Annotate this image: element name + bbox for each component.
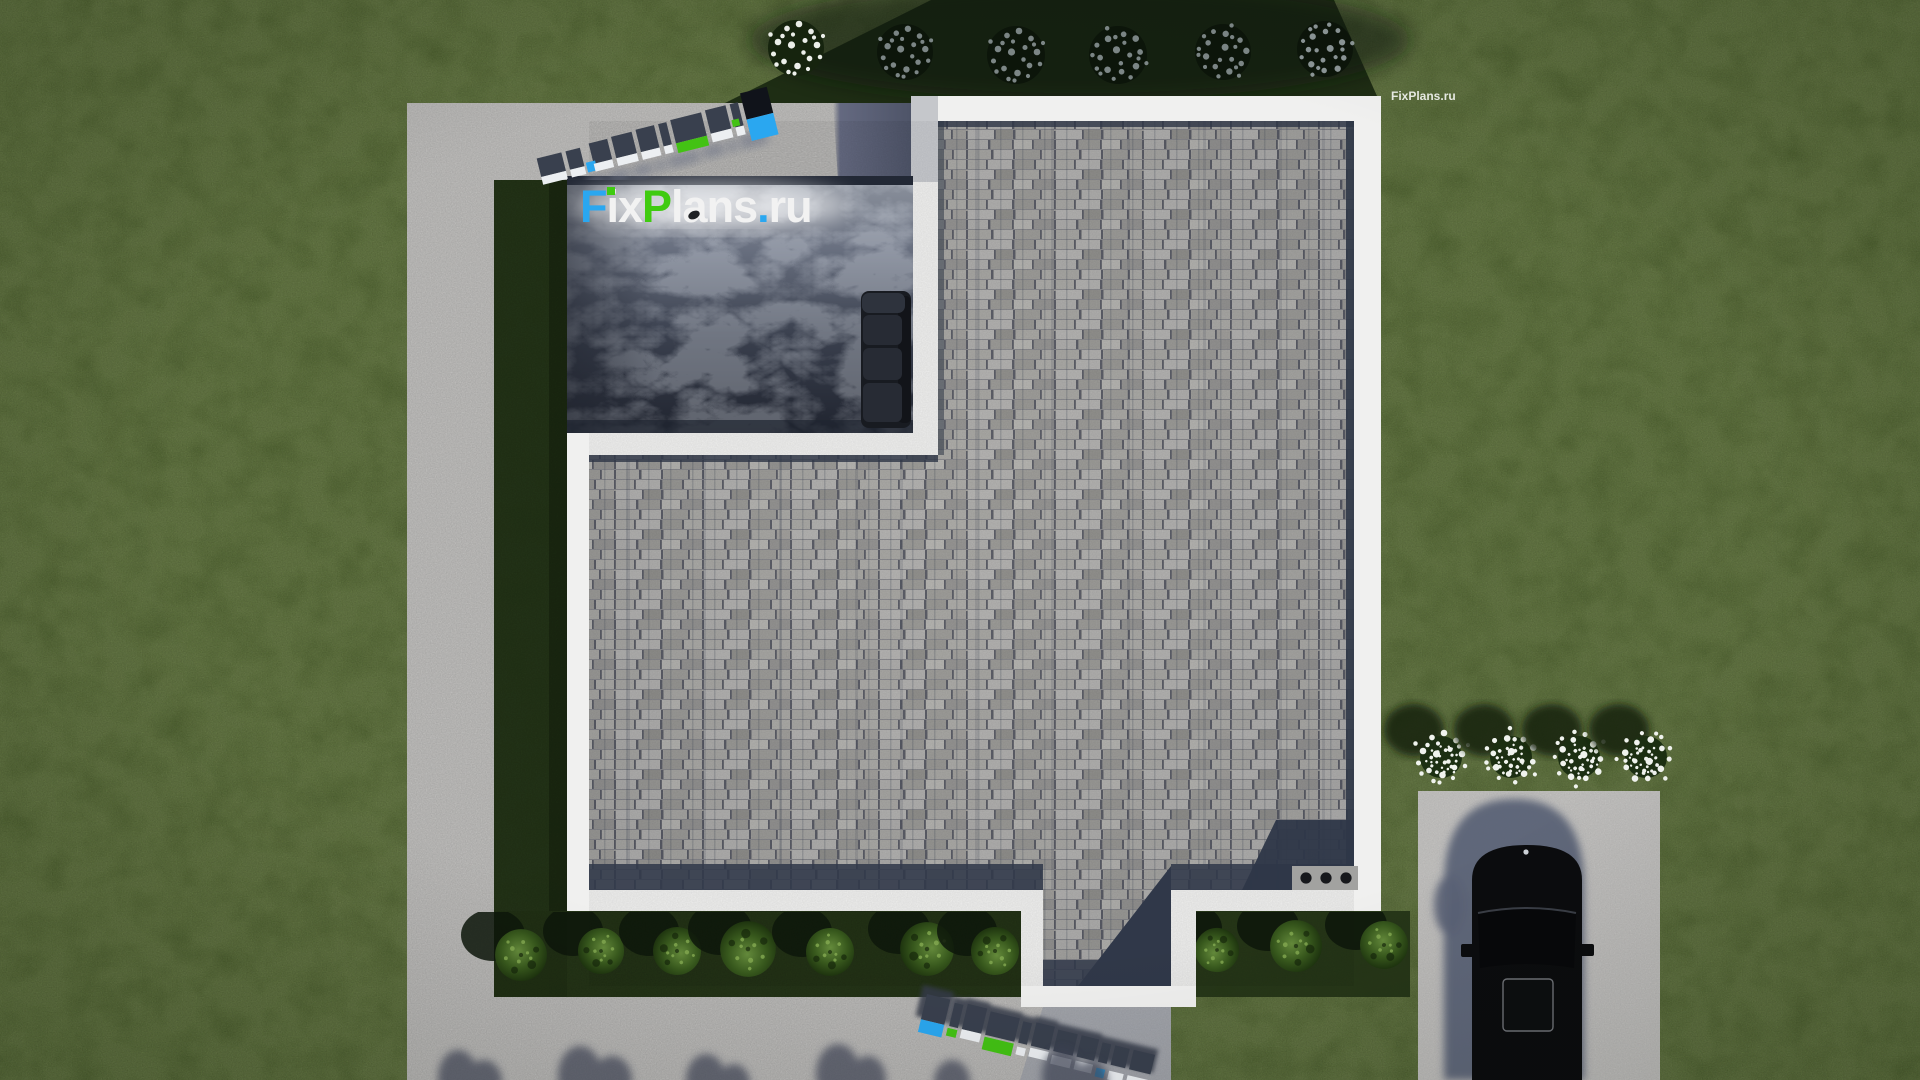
svg-text:FixPlans.ru: FixPlans.ru xyxy=(1391,89,1456,103)
